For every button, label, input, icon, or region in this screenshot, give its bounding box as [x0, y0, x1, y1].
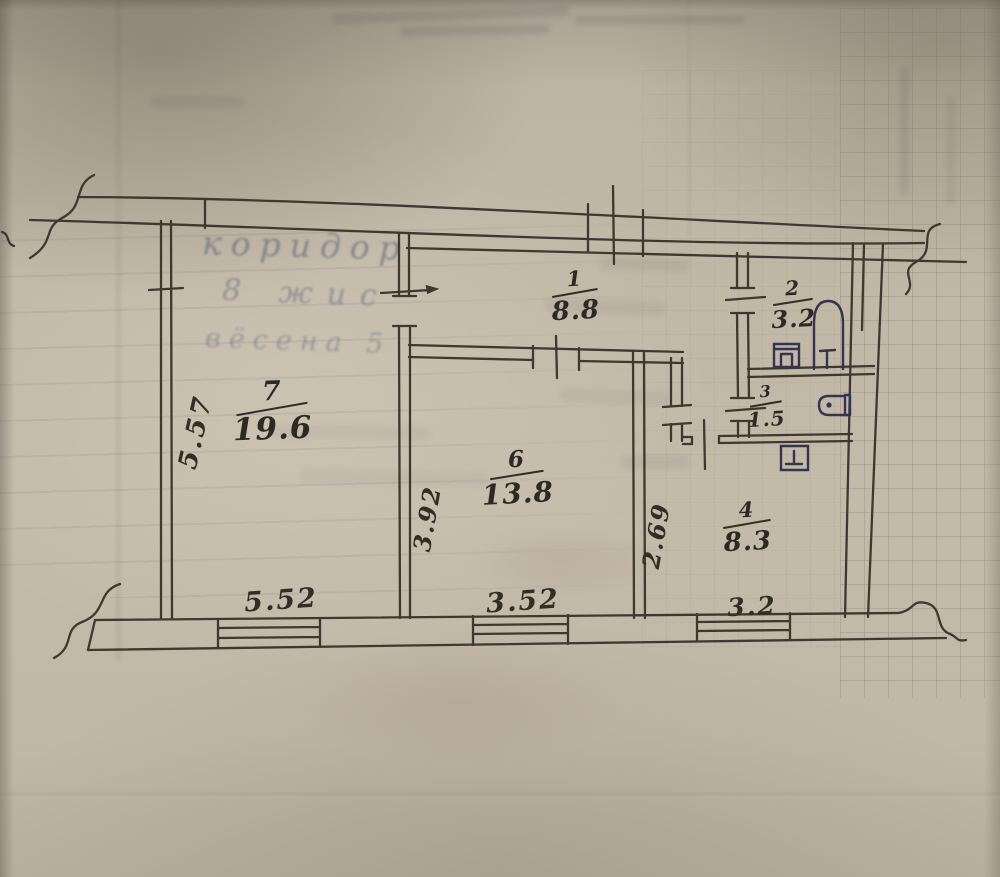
room-area: 8.8	[551, 297, 601, 325]
room-number: 1	[566, 268, 582, 290]
floor-plan-photo: коридор 8 жис вёсена 5	[0, 0, 1000, 877]
door-arrow-icon	[427, 287, 436, 293]
toilet-icon	[819, 395, 850, 415]
room-area: 1.5	[747, 408, 786, 430]
duct-wall	[663, 358, 691, 441]
wall-tick	[149, 288, 183, 290]
right-wall	[845, 243, 883, 617]
walls	[2, 175, 966, 658]
margin-mark	[2, 232, 14, 246]
room-2-label: 2 3.2	[749, 276, 838, 333]
room-number: 7	[261, 378, 281, 406]
room-1-label: 1 8.8	[529, 266, 622, 327]
room-area: 3.2	[771, 306, 817, 332]
washbasin-icon	[774, 344, 799, 367]
room6-north-wall	[409, 336, 683, 378]
room-area: 19.6	[232, 413, 313, 447]
door-tick	[381, 290, 430, 293]
bath-wc-divider	[748, 366, 874, 377]
wall-break-icon	[30, 175, 94, 258]
door-tick	[556, 336, 557, 378]
dimension-bottom-room4: 3.2	[701, 589, 802, 623]
wall-break-icon	[906, 224, 940, 294]
wall-break-icon	[898, 602, 966, 640]
floor-plan-drawing	[0, 0, 1000, 877]
room-3-label: 3 1.5	[725, 382, 807, 431]
room-6-label: 6 13.8	[470, 446, 563, 511]
door-tick	[704, 420, 705, 469]
room-area: 13.8	[481, 478, 555, 510]
room-number: 2	[785, 278, 800, 299]
window-icon	[218, 618, 320, 648]
kitchen-sink-icon	[781, 446, 808, 470]
entrance-door-tick	[613, 186, 614, 264]
room-number: 4	[738, 499, 754, 521]
room-number: 6	[507, 448, 524, 472]
left-wall	[149, 221, 183, 618]
room-4-label: 4 8.3	[701, 497, 794, 558]
room-area: 8.3	[723, 528, 773, 556]
room-number: 3	[759, 384, 771, 401]
room-7-label: 7 19.6	[226, 376, 318, 446]
